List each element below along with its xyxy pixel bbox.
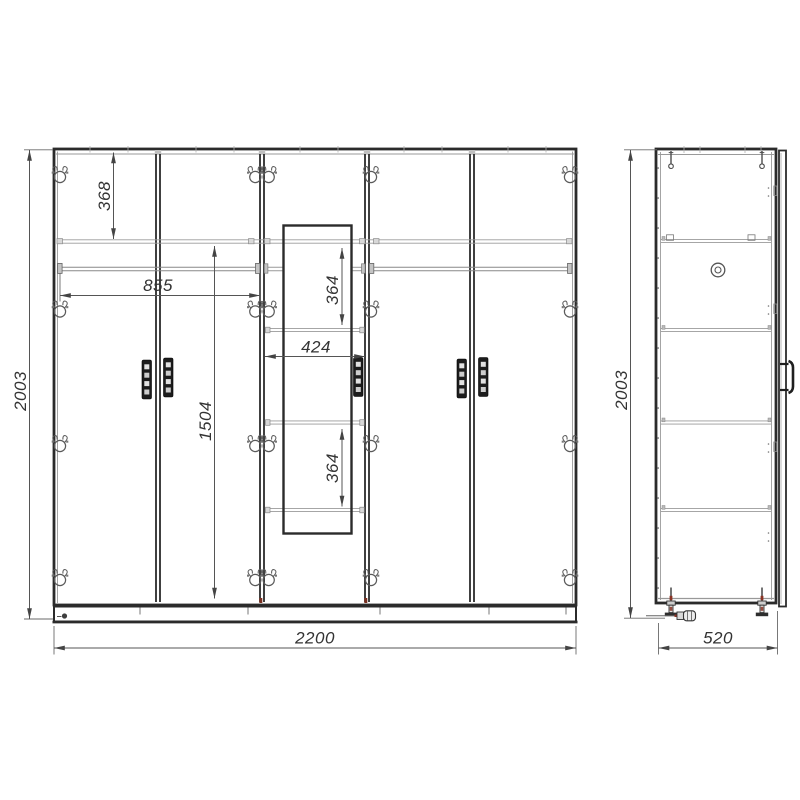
front-view: 2003 368 855 1504 364 [11,146,578,655]
plinth-outline [54,607,576,622]
front-carcass-outline [54,149,576,605]
dim-front-width-label: 2200 [294,629,335,648]
door-handle [479,358,489,397]
front-plinth [53,607,578,623]
dim-side-depth: 520 [659,611,778,655]
dim-front-width: 2200 [54,626,576,655]
dim-center-width-label: 424 [301,338,331,357]
dim-front-height-label: 2003 [11,371,30,412]
front-carcass [54,146,576,605]
door-handle [142,360,152,399]
door-handle [354,358,364,397]
dim-center-upper-label: 364 [323,275,342,305]
dim-interior-height-label: 1504 [196,401,215,441]
dim-side-depth-label: 520 [703,629,733,648]
door-handle [164,358,174,397]
side-view: 2003 520 [612,146,793,655]
door-handle [457,359,467,398]
technical-drawing-page: 2003 368 855 1504 364 [0,0,800,800]
dim-top-section-label: 368 [95,181,114,211]
side-door-outline [779,151,786,607]
dim-side-height-label: 2003 [612,370,631,411]
dim-center-lower-label: 364 [323,453,342,483]
wardrobe-technical-drawing: 2003 368 855 1504 364 [0,0,800,800]
dim-rod-width-label: 855 [143,276,173,295]
plinth-foot-dot [62,613,67,618]
side-door-panel [779,151,786,607]
side-carcass [656,146,776,603]
side-carcass-outline [656,149,776,603]
dim-front-height: 2003 [11,150,53,619]
